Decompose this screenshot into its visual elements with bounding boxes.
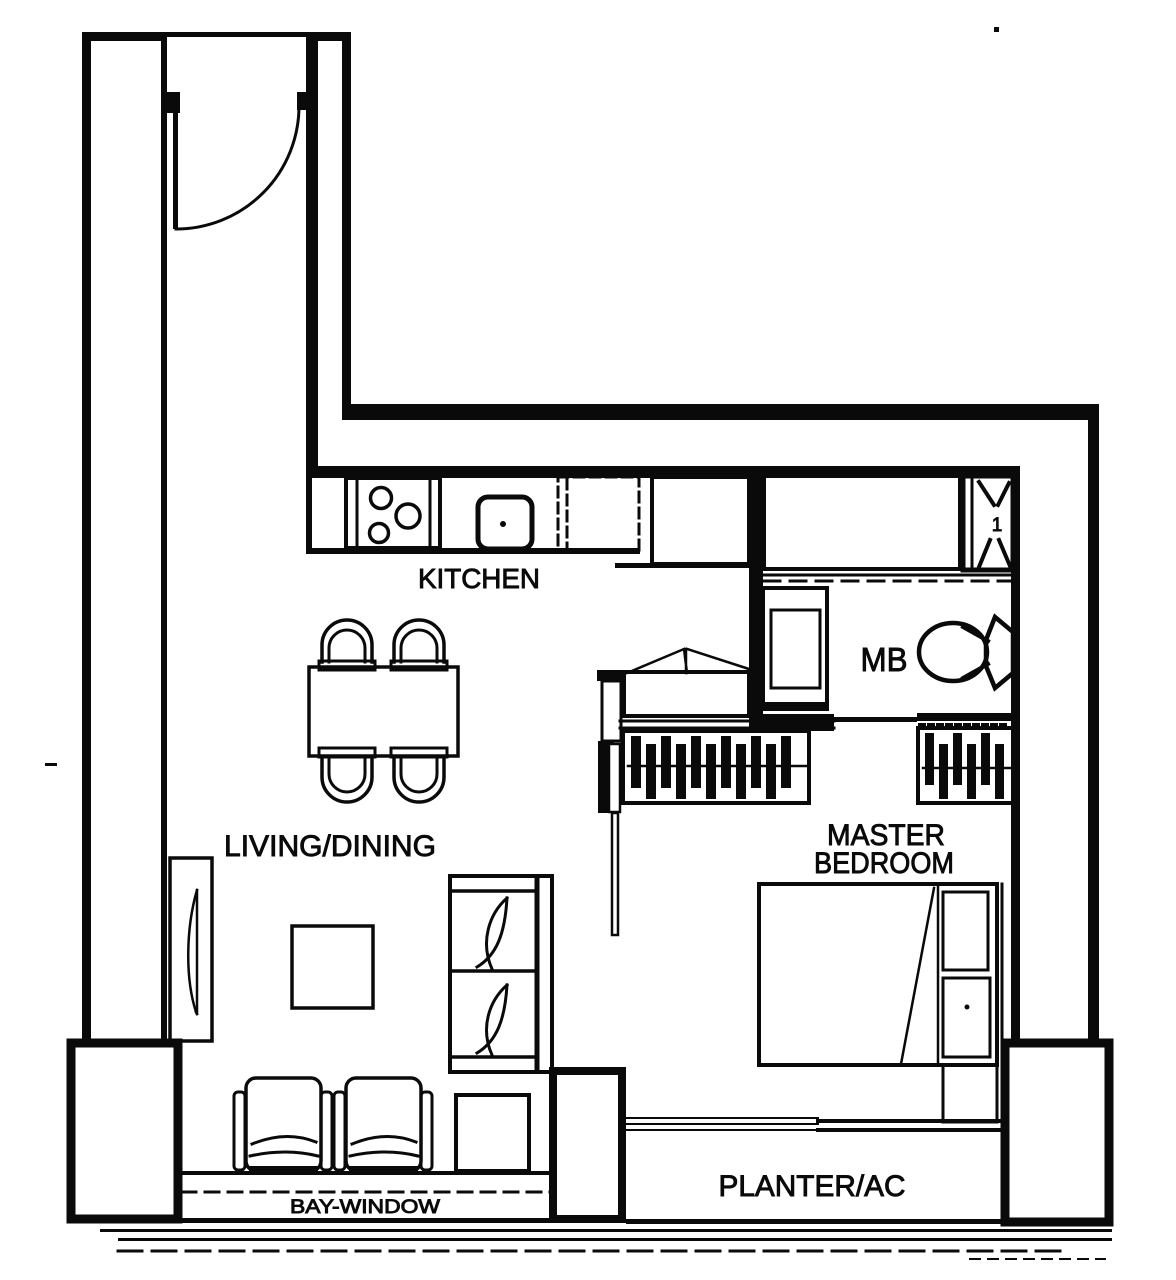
svg-text:BEDROOM: BEDROOM — [814, 847, 954, 880]
svg-text:MB: MB — [861, 641, 908, 678]
svg-text:BAY-WINDOW: BAY-WINDOW — [290, 1197, 440, 1218]
svg-text:LIVING/DINING: LIVING/DINING — [224, 830, 436, 863]
svg-text:1: 1 — [992, 515, 1003, 536]
svg-text:KITCHEN: KITCHEN — [418, 563, 540, 594]
svg-text:PLANTER/AC: PLANTER/AC — [719, 1170, 906, 1203]
